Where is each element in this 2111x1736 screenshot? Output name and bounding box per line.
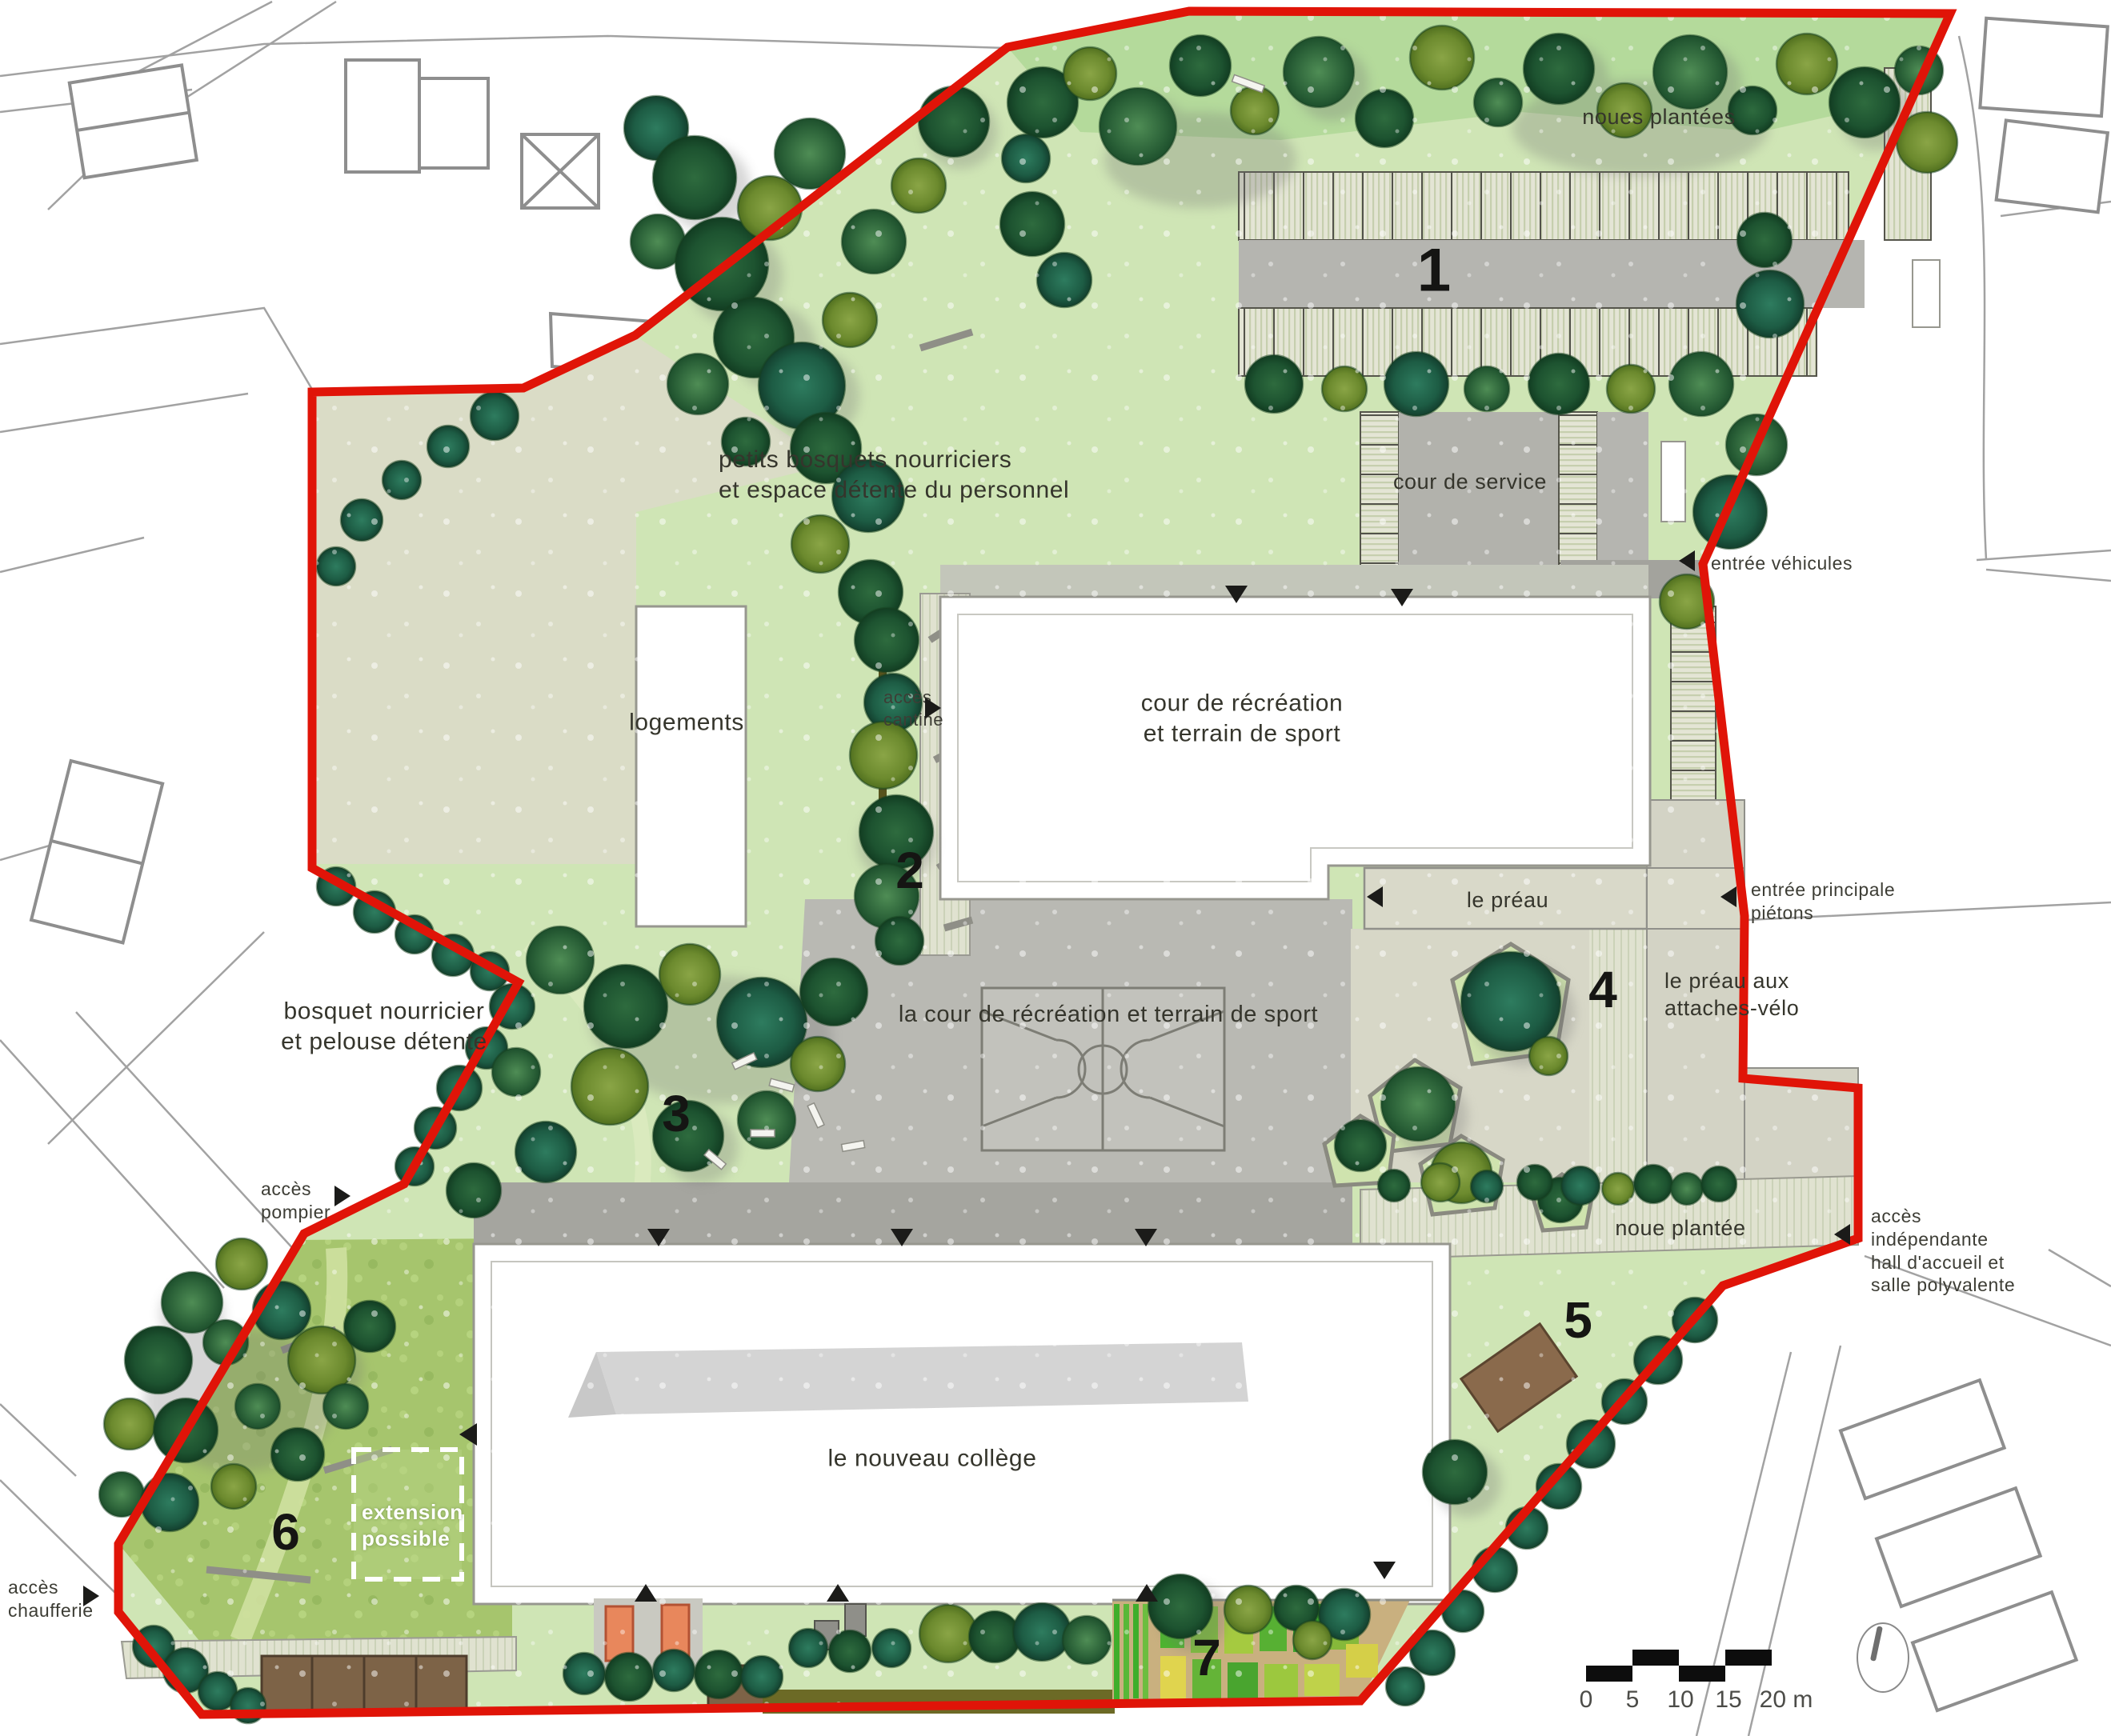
label-extension-possible: extensionpossible bbox=[362, 1499, 463, 1551]
label-le-preau: le préau bbox=[1467, 887, 1548, 914]
scale-tick-5: 5 bbox=[1626, 1686, 1640, 1714]
plan-drawing bbox=[0, 0, 2111, 1736]
label-noues-plantees: noues plantées bbox=[1582, 104, 1736, 131]
label-la-cour: la cour de récréation et terrain de spor… bbox=[899, 1000, 1318, 1029]
label-petits-bosquets: petits bosquets nourricierset espace dét… bbox=[719, 445, 1069, 505]
scale-tick-15: 15 bbox=[1715, 1686, 1741, 1714]
label-acces-chaufferie: accèschaufferie bbox=[8, 1576, 94, 1622]
label-college: le nouveau collège bbox=[828, 1443, 1037, 1474]
zone-number-5: 5 bbox=[1564, 1288, 1592, 1352]
preau-arrow-icon bbox=[1367, 886, 1383, 907]
zone-number-4: 4 bbox=[1588, 958, 1617, 1022]
label-acces-pompier: accèspompier bbox=[261, 1178, 330, 1224]
scale-bar-segment bbox=[1586, 1666, 1632, 1682]
zone-number-7: 7 bbox=[1192, 1626, 1221, 1690]
acces-independante-arrow-icon bbox=[1834, 1224, 1850, 1245]
zone-number-3: 3 bbox=[662, 1082, 691, 1146]
label-logements: logements bbox=[629, 707, 744, 738]
label-acces-independante: accèsindépendante hall d'accueil etsalle… bbox=[1871, 1205, 2015, 1297]
label-cour-recreation: cour de récréationet terrain de sport bbox=[1141, 689, 1344, 749]
scale-bar-segment bbox=[1679, 1666, 1725, 1682]
zone-number-1: 1 bbox=[1417, 233, 1451, 309]
zone-number-6: 6 bbox=[271, 1500, 300, 1564]
scale-bar-segment bbox=[1632, 1650, 1679, 1666]
scale-tick-20m: 20 m bbox=[1760, 1686, 1813, 1714]
entree-vehicules-arrow-icon bbox=[1679, 550, 1695, 571]
acces-pompier-arrow-icon bbox=[334, 1186, 350, 1206]
acces-cantine-arrow-icon bbox=[925, 698, 941, 718]
scale-tick-0: 0 bbox=[1580, 1686, 1593, 1714]
zone-number-2: 2 bbox=[895, 838, 924, 902]
north-indicator-icon bbox=[1857, 1622, 1909, 1693]
label-entree-principale: entrée principalepiétons bbox=[1751, 878, 1895, 925]
label-entree-vehicules: entrée véhicules bbox=[1711, 552, 1853, 575]
scale-bar-segment bbox=[1725, 1650, 1772, 1666]
entree-principale-arrow-icon bbox=[1720, 886, 1736, 907]
label-preau-velo: le préau auxattaches-vélo bbox=[1664, 968, 1799, 1022]
acces-chaufferie-arrow-icon bbox=[83, 1586, 99, 1606]
site-plan: noues plantées 1 cour de service entrée … bbox=[0, 0, 2111, 1736]
north-needle bbox=[1870, 1626, 1883, 1661]
label-bosquet-nourricier: bosquet nourricieret pelouse détente bbox=[281, 997, 487, 1057]
scale-tick-10: 10 bbox=[1667, 1686, 1693, 1714]
label-cour-de-service: cour de service bbox=[1393, 469, 1547, 496]
label-noue-plantee: noue plantée bbox=[1615, 1215, 1745, 1242]
